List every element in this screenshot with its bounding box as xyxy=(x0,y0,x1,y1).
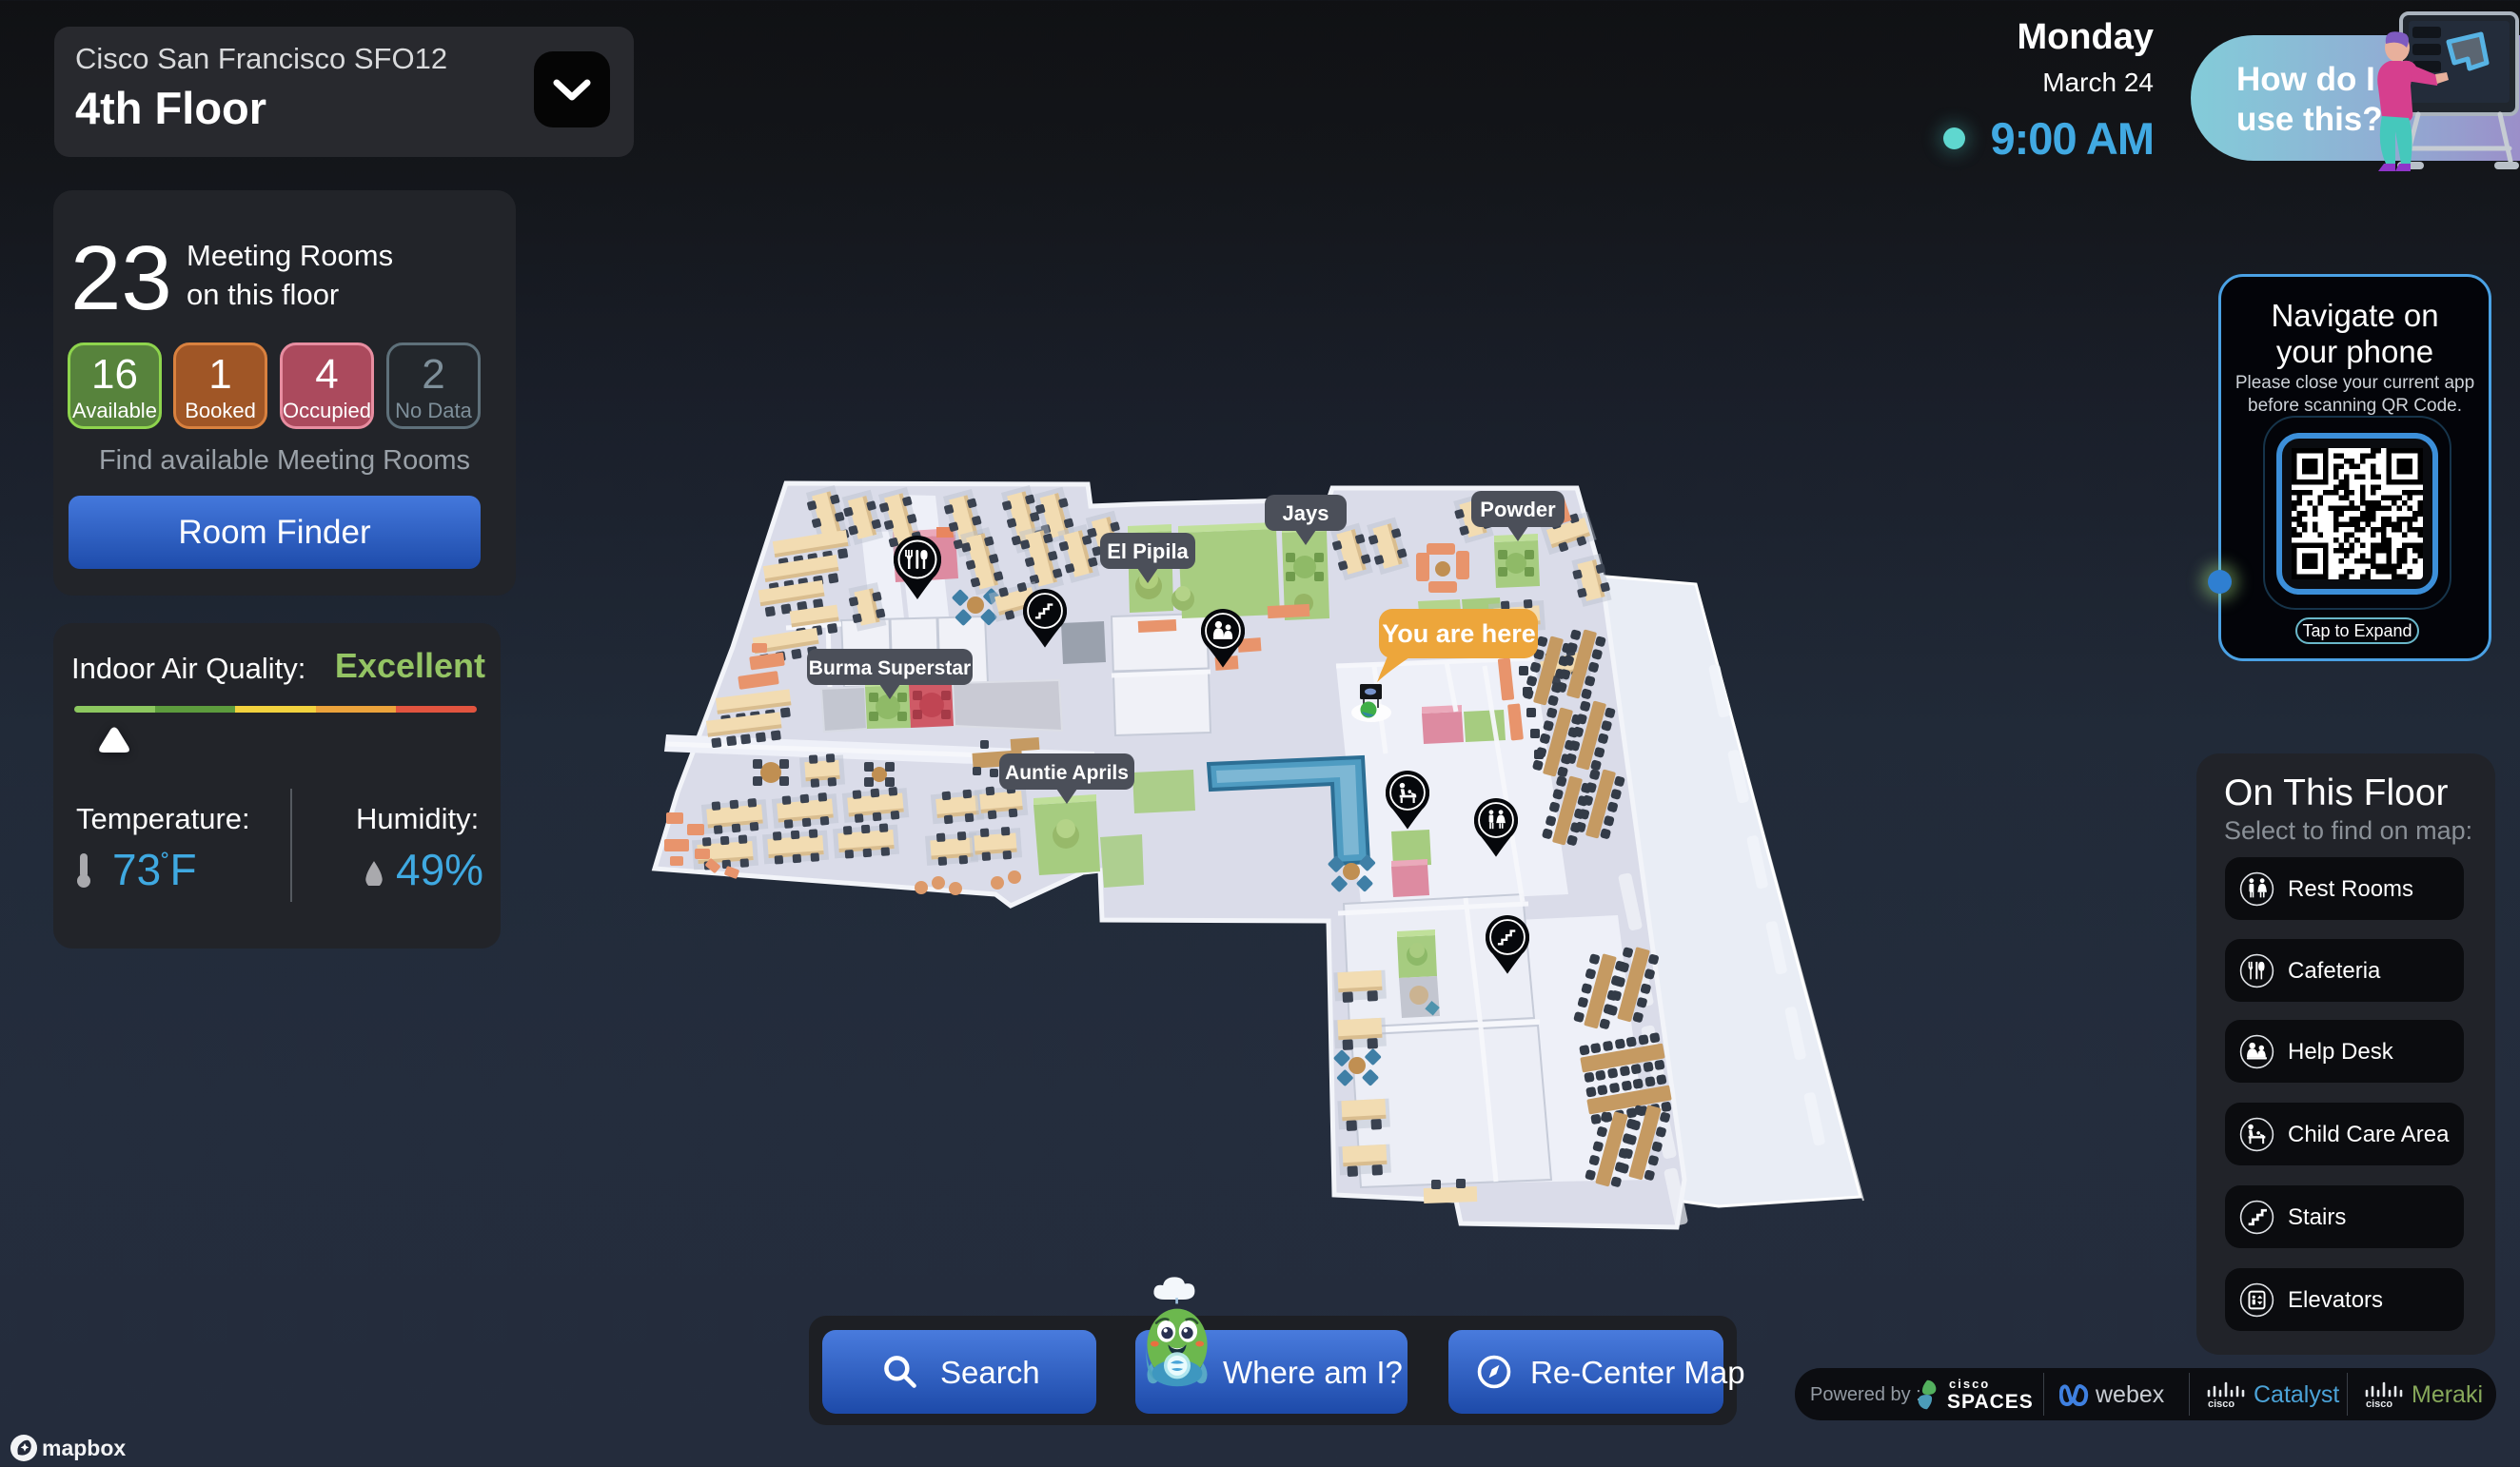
svg-text:cisco: cisco xyxy=(2208,1399,2235,1408)
svg-text:Jays: Jays xyxy=(1283,501,1329,525)
svg-text:Powder: Powder xyxy=(1480,498,1556,521)
svg-text:Auntie Aprils: Auntie Aprils xyxy=(1005,762,1129,784)
svg-text:Burma Superstar: Burma Superstar xyxy=(809,657,971,679)
svg-text:El Pipila: El Pipila xyxy=(1107,539,1189,563)
svg-text:You are here: You are here xyxy=(1382,619,1536,648)
svg-text:mapbox: mapbox xyxy=(42,1436,126,1460)
svg-text:cisco: cisco xyxy=(2366,1399,2392,1408)
